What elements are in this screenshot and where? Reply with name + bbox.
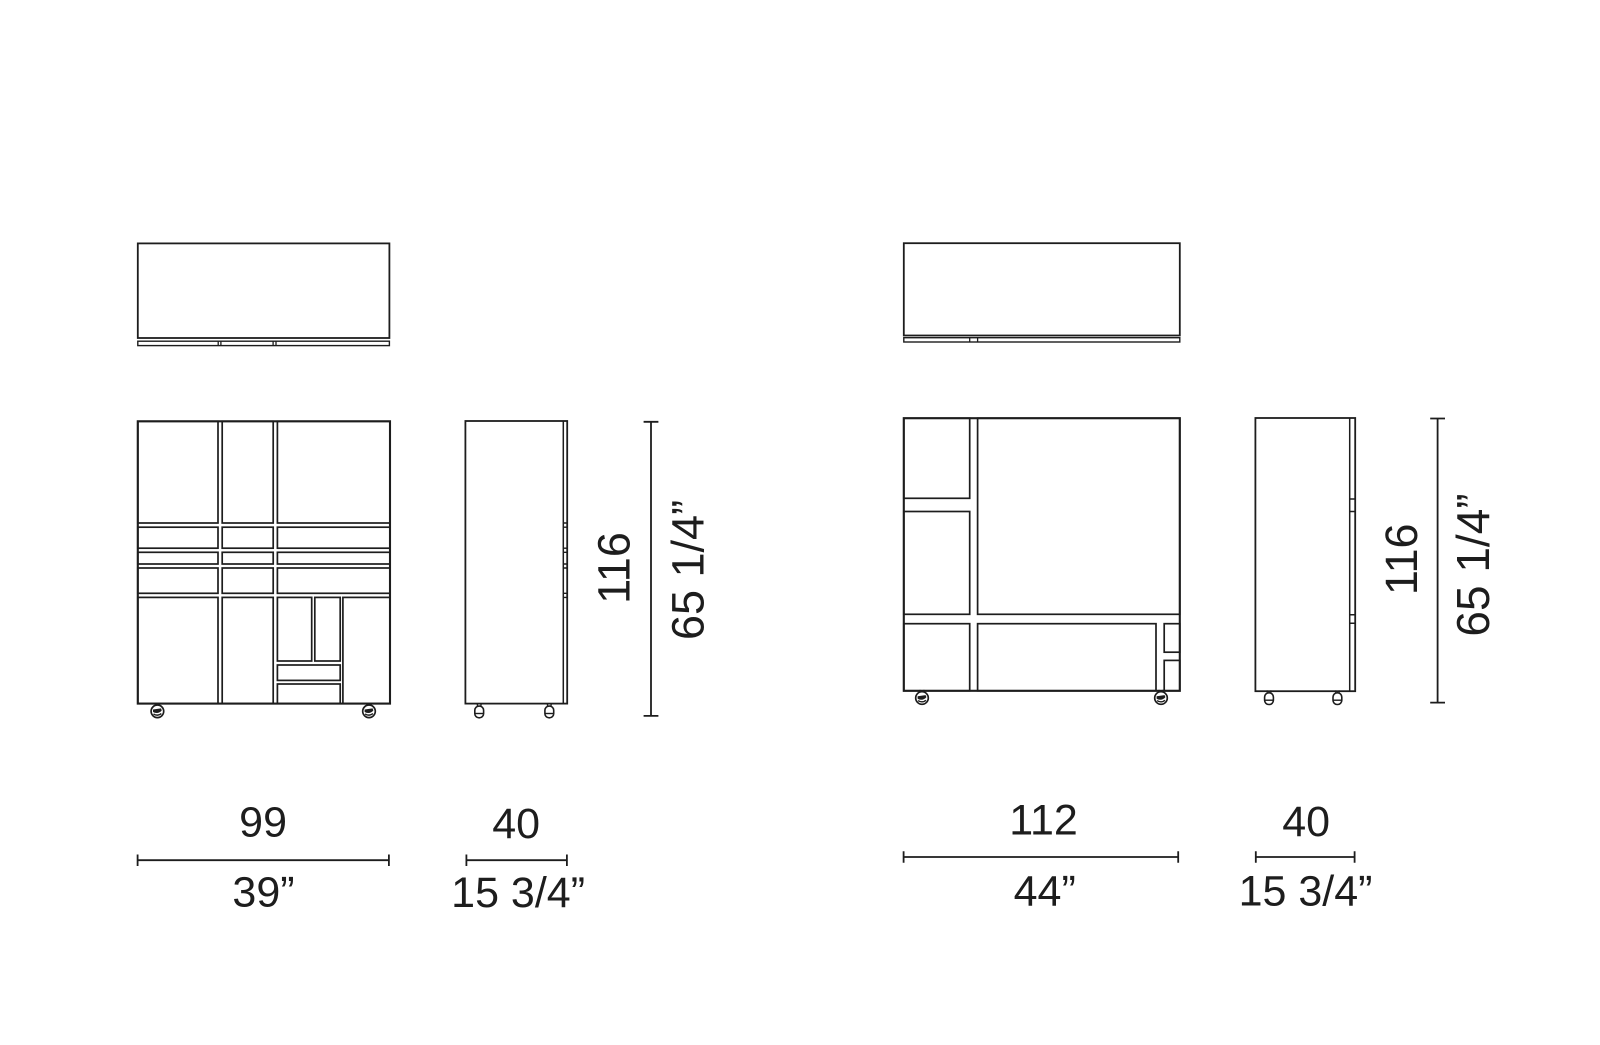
- svg-text:40: 40: [492, 800, 540, 848]
- svg-text:65 1/4”: 65 1/4”: [1447, 493, 1499, 636]
- svg-text:15 3/4”: 15 3/4”: [451, 869, 585, 917]
- svg-text:44”: 44”: [1014, 868, 1076, 916]
- svg-text:112: 112: [1009, 796, 1078, 844]
- svg-text:116: 116: [589, 532, 640, 604]
- svg-text:65 1/4”: 65 1/4”: [662, 500, 713, 640]
- svg-text:99: 99: [239, 799, 287, 847]
- svg-text:39”: 39”: [232, 869, 294, 917]
- svg-text:40: 40: [1282, 798, 1330, 846]
- svg-text:15 3/4”: 15 3/4”: [1239, 868, 1373, 916]
- svg-text:116: 116: [1376, 523, 1427, 595]
